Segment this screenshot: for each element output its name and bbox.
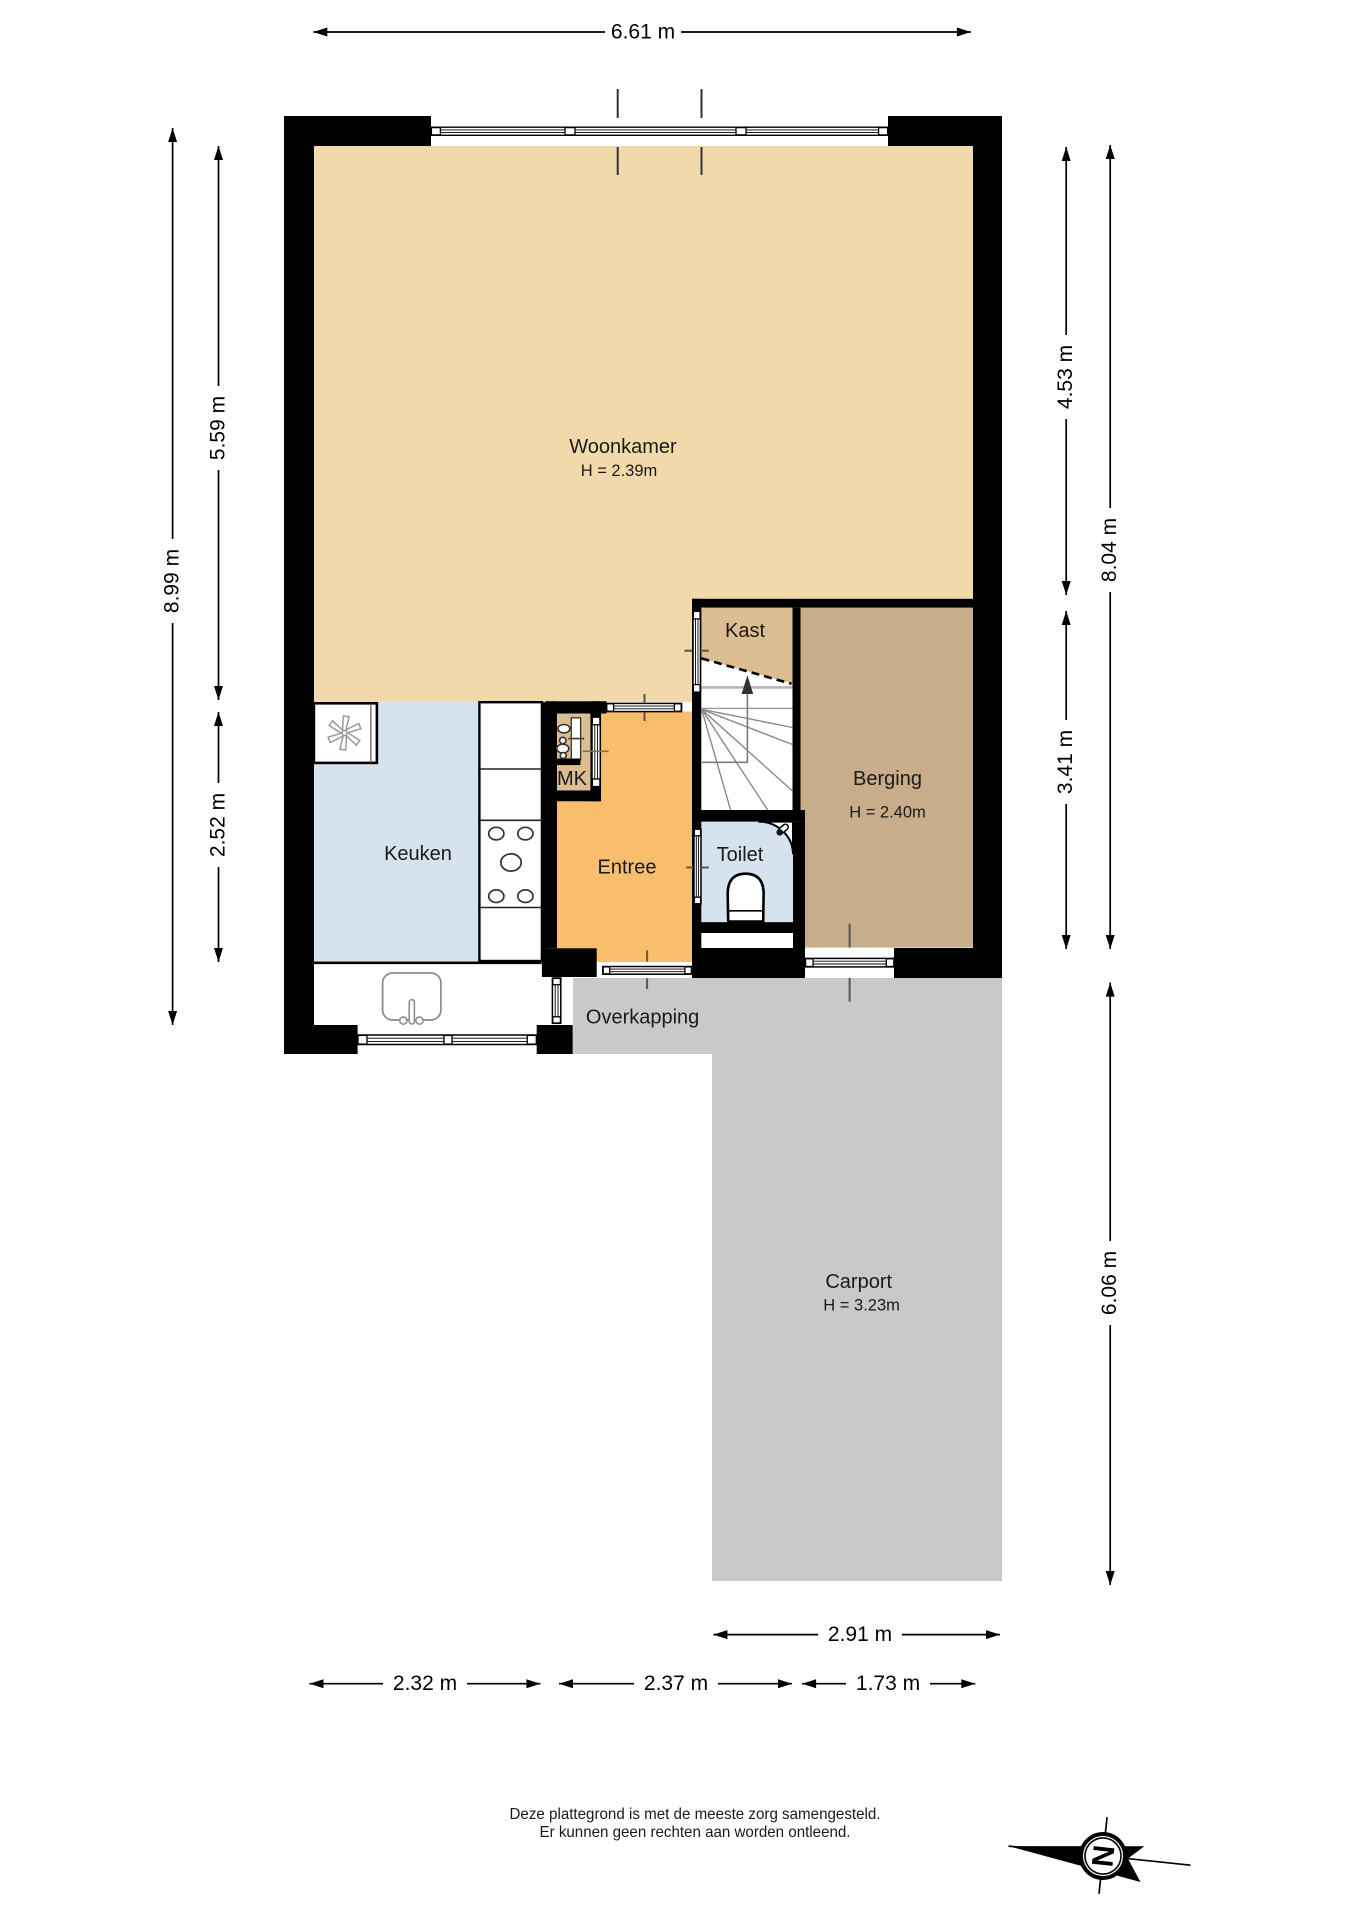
svg-text:5.59 m: 5.59 m [207,396,230,460]
svg-text:2.52 m: 2.52 m [207,793,230,857]
svg-text:H = 2.39m: H = 2.39m [581,462,658,480]
svg-text:6.61 m: 6.61 m [611,21,675,44]
svg-text:Deze plattegrond is met de mee: Deze plattegrond is met de meeste zorg s… [510,1806,881,1823]
svg-text:2.32 m: 2.32 m [393,1672,457,1695]
svg-text:N: N [1086,1844,1121,1869]
svg-text:Keuken: Keuken [384,843,452,865]
svg-text:Kast: Kast [725,620,765,642]
svg-text:Er kunnen geen rechten aan wor: Er kunnen geen rechten aan worden ontlee… [540,1824,851,1841]
svg-text:3.41 m: 3.41 m [1054,730,1077,794]
svg-text:H = 2.40m: H = 2.40m [849,804,926,822]
svg-text:H = 3.23m: H = 3.23m [823,1296,900,1314]
svg-text:6.06 m: 6.06 m [1098,1251,1121,1315]
svg-text:2.37 m: 2.37 m [644,1672,708,1695]
svg-text:4.53 m: 4.53 m [1054,345,1077,409]
svg-text:Woonkamer: Woonkamer [569,436,677,458]
svg-text:Overkapping: Overkapping [586,1007,699,1029]
svg-text:Berging: Berging [853,768,922,790]
svg-text:8.04 m: 8.04 m [1098,518,1121,582]
svg-text:2.91 m: 2.91 m [828,1623,892,1646]
svg-text:Toilet: Toilet [717,844,764,866]
svg-text:Entree: Entree [598,857,657,879]
svg-text:8.99 m: 8.99 m [161,549,184,613]
svg-text:Carport: Carport [825,1271,892,1293]
svg-text:MK: MK [557,768,588,790]
svg-text:1.73 m: 1.73 m [856,1672,920,1695]
